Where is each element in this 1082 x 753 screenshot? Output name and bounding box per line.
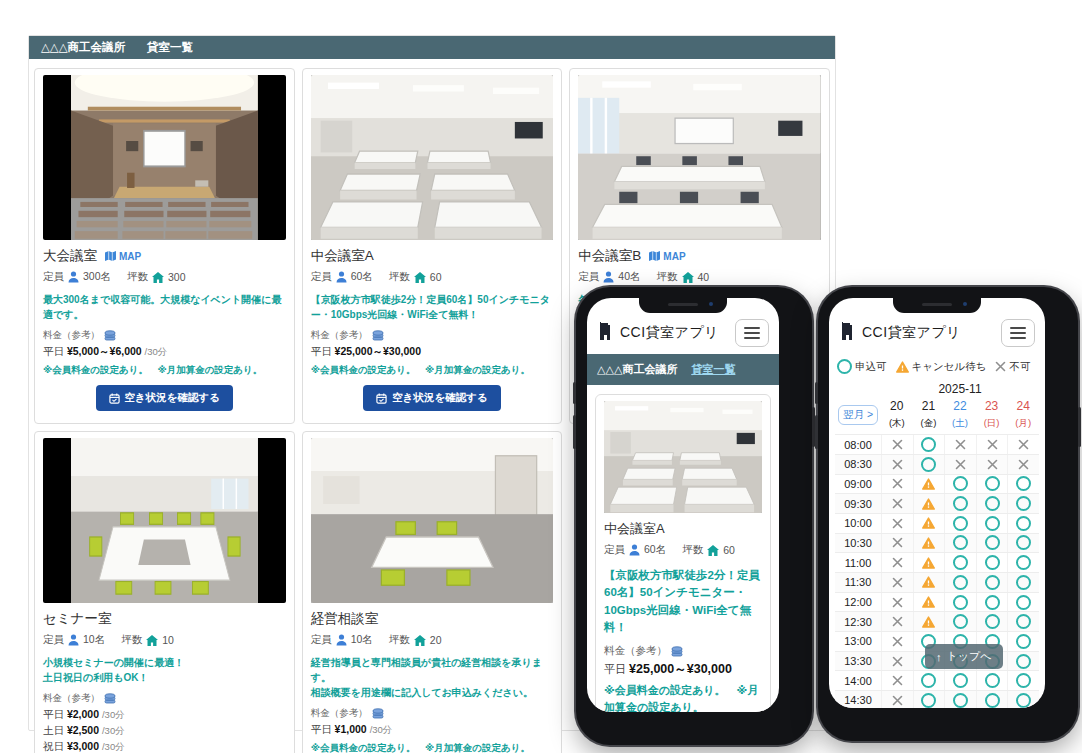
capacity-label: 定員	[604, 543, 625, 557]
check-availability-button[interactable]: 空き状況を確認する	[96, 385, 233, 411]
price-line: 平日 ¥5,000～¥6,000 /30分	[43, 345, 286, 359]
coins-icon	[372, 708, 384, 719]
member-price-note: ※会員料金の設定あり。 ※月加算金の設定あり。	[311, 741, 554, 753]
slot-cell[interactable]	[976, 475, 1008, 494]
room-title: 中会議室B	[578, 247, 641, 265]
slot-cell[interactable]	[913, 691, 945, 708]
navbar-brand: △△△商工会議所	[41, 40, 125, 55]
time-cell: 09:00	[835, 478, 881, 490]
member-price-note: ※会員料金の設定あり。 ※月加算金の設定あり。	[311, 363, 554, 377]
available-icon	[921, 437, 936, 452]
slot-cell[interactable]	[1007, 435, 1039, 454]
day-header: 22(土)	[944, 399, 976, 430]
available-icon	[1016, 476, 1031, 491]
waitlist-icon	[922, 576, 935, 588]
person-icon	[336, 634, 347, 646]
room-description: 【京阪枚方市駅徒歩2分！定員60名】50インチモニター・10Gbps光回線・Wi…	[604, 567, 762, 636]
area-value: 300	[168, 271, 186, 283]
available-icon	[953, 595, 968, 610]
calendar-row: 12:30	[835, 611, 1039, 631]
fee-label: 料金（参考）	[311, 329, 554, 342]
app-title: CCI貸室アプリ	[620, 324, 719, 342]
room-meta: 定員300名 坪数300	[43, 270, 286, 284]
slot-cell[interactable]	[976, 435, 1008, 454]
time-cell: 13:00	[835, 635, 881, 647]
hamburger-icon	[744, 327, 760, 339]
unavailable-icon	[987, 459, 998, 470]
area-label: 坪数	[682, 543, 703, 557]
area-label: 坪数	[389, 270, 410, 284]
room-title: セミナー室	[43, 610, 111, 628]
map-link[interactable]: MAP	[105, 251, 141, 262]
room-meta: 定員60名 坪数60	[311, 270, 554, 284]
slot-cell[interactable]	[944, 593, 976, 612]
slot-cell[interactable]	[944, 534, 976, 553]
slot-cell[interactable]	[881, 652, 913, 671]
slot-cell[interactable]	[944, 612, 976, 631]
available-icon	[1016, 634, 1031, 649]
time-cell: 11:30	[835, 576, 881, 588]
waitlist-icon	[922, 478, 935, 490]
unavailable-icon	[892, 557, 903, 568]
room-meta: 定員10名 坪数10	[43, 633, 286, 647]
capacity-label: 定員	[311, 633, 332, 647]
navbar-link-room-list[interactable]: 貸室一覧	[691, 362, 735, 377]
navbar-brand: △△△商工会議所	[597, 362, 677, 377]
phone-left: CCI貸室アプリ △△△商工会議所 貸室一覧 中会議室A 定員60名 坪数60 …	[576, 287, 812, 745]
unavailable-icon	[892, 518, 903, 529]
slot-cell[interactable]	[1007, 632, 1039, 651]
capacity-label: 定員	[43, 270, 64, 284]
phone-right: CCI貸室アプリ 申込可キャンセル待ち不可 2025-11 翌月 >20(木)2…	[818, 287, 1078, 741]
map-link-label: MAP	[663, 251, 685, 262]
slot-cell[interactable]	[944, 435, 976, 454]
time-cell: 08:00	[835, 439, 881, 451]
available-icon	[1016, 555, 1031, 570]
person-icon	[336, 271, 347, 283]
available-icon	[953, 496, 968, 511]
slot-cell[interactable]	[976, 671, 1008, 690]
slot-cell[interactable]	[913, 475, 945, 494]
slot-cell[interactable]	[1007, 573, 1039, 592]
legend-item: キャンセル待ち	[896, 360, 987, 374]
capacity-label: 定員	[311, 270, 332, 284]
house-icon	[146, 635, 158, 646]
fee-label: 料金（参考）	[311, 707, 554, 720]
unavailable-icon	[995, 361, 1006, 372]
available-icon	[1016, 535, 1031, 550]
waitlist-icon	[922, 498, 935, 510]
capacity-value: 40名	[618, 270, 640, 284]
room-photo	[43, 438, 286, 603]
price-line: 平日 ¥1,000 /30分	[311, 723, 554, 737]
slot-cell[interactable]	[976, 593, 1008, 612]
available-icon	[953, 516, 968, 531]
capacity-label: 定員	[43, 633, 64, 647]
price-line: 土日 ¥2,500 /30分	[43, 724, 286, 738]
price-line: 平日 ¥2,000 /30分	[43, 708, 286, 722]
slot-cell[interactable]	[913, 593, 945, 612]
time-cell: 11:00	[835, 557, 881, 569]
time-cell: 13:30	[835, 655, 881, 667]
calendar-row: 14:00	[835, 670, 1039, 690]
slot-cell[interactable]	[976, 494, 1008, 513]
available-icon	[1016, 673, 1031, 688]
available-icon	[985, 496, 1000, 511]
room-meta: 定員10名 坪数20	[311, 633, 554, 647]
slot-cell[interactable]	[976, 573, 1008, 592]
calendar-row: 09:00	[835, 474, 1039, 494]
map-link-label: MAP	[119, 251, 141, 262]
time-cell: 10:30	[835, 537, 881, 549]
available-icon	[985, 516, 1000, 531]
available-icon	[921, 693, 936, 708]
map-icon	[649, 251, 660, 261]
room-photo	[604, 401, 762, 513]
available-icon	[953, 575, 968, 590]
unavailable-icon	[1018, 459, 1029, 470]
room-card: 大会議室MAP 定員300名 坪数300 最大300名まで収容可能。大規模なイベ…	[34, 68, 295, 424]
slot-cell[interactable]	[944, 475, 976, 494]
building-icon	[839, 322, 856, 345]
slot-cell[interactable]	[1007, 455, 1039, 474]
menu-button[interactable]	[735, 319, 769, 347]
available-icon	[837, 359, 852, 374]
price-line: 平日 ¥25,000～¥30,000	[604, 661, 762, 678]
slot-cell[interactable]	[881, 475, 913, 494]
unavailable-icon	[955, 439, 966, 450]
slot-cell[interactable]	[976, 455, 1008, 474]
available-icon	[1016, 595, 1031, 610]
area-value: 60	[430, 271, 442, 283]
waitlist-icon	[922, 596, 935, 608]
phone-notch	[639, 298, 727, 313]
slot-cell[interactable]	[881, 514, 913, 533]
time-cell: 08:30	[835, 458, 881, 470]
person-icon	[68, 634, 79, 646]
day-header: 24(月)	[1007, 399, 1039, 430]
available-icon	[1016, 654, 1031, 669]
slot-cell[interactable]	[1007, 671, 1039, 690]
slot-cell[interactable]	[1007, 534, 1039, 553]
area-value: 60	[723, 544, 735, 556]
available-icon	[921, 457, 936, 472]
calendar-row: 11:30	[835, 572, 1039, 592]
legend-label: 不可	[1009, 360, 1030, 374]
slot-cell[interactable]	[881, 593, 913, 612]
area-value: 10	[162, 634, 174, 646]
coins-icon	[372, 330, 384, 341]
room-title: 中会議室A	[604, 520, 665, 538]
slot-cell[interactable]	[1007, 691, 1039, 708]
app-title: CCI貸室アプリ	[862, 324, 961, 342]
unavailable-icon	[892, 459, 903, 470]
legend-label: 申込可	[855, 360, 887, 374]
day-header: 20(木)	[881, 399, 913, 430]
slot-cell[interactable]	[881, 691, 913, 708]
available-icon	[953, 535, 968, 550]
slot-cell[interactable]	[913, 553, 945, 572]
room-description: 最大300名まで収容可能。大規模なイベント開催に最適です。	[43, 292, 286, 322]
unavailable-icon	[892, 478, 903, 489]
phone-right-screen: CCI貸室アプリ 申込可キャンセル待ち不可 2025-11 翌月 >20(木)2…	[829, 298, 1045, 708]
room-title: 経営相談室	[311, 610, 379, 628]
available-icon	[985, 614, 1000, 629]
room-card: セミナー室 定員10名 坪数10 小規模セミナーの開催に最適！ 土日祝日の利用も…	[34, 431, 295, 753]
area-value: 20	[430, 634, 442, 646]
slot-cell[interactable]	[976, 514, 1008, 533]
phone-left-screen: CCI貸室アプリ △△△商工会議所 貸室一覧 中会議室A 定員60名 坪数60 …	[587, 298, 779, 712]
time-cell: 09:30	[835, 498, 881, 510]
time-cell: 14:00	[835, 675, 881, 687]
available-icon	[985, 595, 1000, 610]
fee-label: 料金（参考）	[43, 692, 286, 705]
unavailable-icon	[892, 616, 903, 627]
waitlist-icon	[896, 361, 909, 373]
area-value: 40	[698, 271, 710, 283]
time-cell: 12:30	[835, 616, 881, 628]
navbar-link-room-list[interactable]: 貸室一覧	[147, 40, 193, 55]
calendar-row: 08:00	[835, 434, 1039, 454]
calendar-month: 2025-11	[881, 378, 1039, 398]
capacity-value: 300名	[83, 270, 111, 284]
slot-cell[interactable]	[1007, 494, 1039, 513]
slot-cell[interactable]	[944, 514, 976, 533]
available-icon	[1016, 496, 1031, 511]
unavailable-icon	[892, 656, 903, 667]
calendar-row: 12:00	[835, 592, 1039, 612]
room-description: 【京阪枚方市駅徒歩2分！定員60名】50インチモニター・10Gbps光回線・Wi…	[311, 292, 554, 322]
time-cell: 12:00	[835, 596, 881, 608]
area-label: 坪数	[127, 270, 148, 284]
map-icon	[105, 251, 116, 261]
room-description: 経営指導員と専門相談員が貴社の経営相談を承ります。 相談概要を用途欄に記入してお…	[311, 655, 554, 700]
available-icon	[985, 693, 1000, 708]
house-icon	[414, 272, 426, 283]
room-card: 中会議室A 定員60名 坪数60 【京阪枚方市駅徒歩2分！定員60名】50インチ…	[595, 394, 771, 712]
capacity-value: 60名	[644, 543, 666, 557]
check-availability-button[interactable]: 空き状況を確認する	[363, 385, 500, 411]
slot-cell[interactable]	[1007, 593, 1039, 612]
calendar-day-headers: 翌月 >20(木)21(金)22(土)23(日)24(月)	[835, 398, 1039, 434]
available-icon	[985, 575, 1000, 590]
slot-cell[interactable]	[976, 553, 1008, 572]
room-photo	[43, 75, 286, 240]
site-navbar: △△△商工会議所 貸室一覧	[29, 36, 835, 59]
available-icon	[1016, 693, 1031, 708]
area-label: 坪数	[389, 633, 410, 647]
slot-cell[interactable]	[881, 435, 913, 454]
calendar-row: 09:30	[835, 493, 1039, 513]
capacity-value: 10名	[351, 633, 373, 647]
unavailable-icon	[892, 439, 903, 450]
time-cell: 10:00	[835, 517, 881, 529]
calendar-row: 08:30	[835, 454, 1039, 474]
coins-icon	[104, 693, 116, 704]
available-icon	[1016, 614, 1031, 629]
available-icon	[1016, 575, 1031, 590]
available-icon	[985, 555, 1000, 570]
calendar-icon	[109, 393, 120, 404]
available-icon	[953, 673, 968, 688]
room-photo	[311, 438, 554, 603]
slot-cell[interactable]	[913, 534, 945, 553]
unavailable-icon	[892, 695, 903, 706]
price-line: 平日 ¥25,000～¥30,000	[311, 345, 554, 359]
slot-cell[interactable]	[976, 612, 1008, 631]
slot-cell[interactable]	[1007, 475, 1039, 494]
room-title: 大会議室	[43, 247, 97, 265]
slot-cell[interactable]	[913, 514, 945, 533]
area-label: 坪数	[121, 633, 142, 647]
calendar-row: 10:30	[835, 533, 1039, 553]
member-price-note: ※会員料金の設定あり。 ※月加算金の設定あり。	[43, 363, 286, 377]
unavailable-icon	[892, 498, 903, 509]
building-icon	[597, 322, 614, 345]
capacity-value: 10名	[83, 633, 105, 647]
available-icon	[953, 476, 968, 491]
capacity-label: 定員	[578, 270, 599, 284]
unavailable-icon	[892, 597, 903, 608]
fee-label: 料金（参考）	[43, 329, 286, 342]
slot-cell[interactable]	[976, 691, 1008, 708]
slot-cell[interactable]	[1007, 514, 1039, 533]
person-icon	[68, 271, 79, 283]
next-month-button[interactable]: 翌月 >	[838, 405, 878, 425]
room-description: 小規模セミナーの開催に最適！ 土日祝日の利用もOK！	[43, 655, 286, 685]
slot-cell[interactable]	[976, 534, 1008, 553]
slot-cell[interactable]	[913, 671, 945, 690]
slot-cell[interactable]	[881, 671, 913, 690]
waitlist-icon	[922, 537, 935, 549]
room-title: 中会議室A	[311, 247, 374, 265]
slot-cell[interactable]	[1007, 553, 1039, 572]
available-icon	[921, 673, 936, 688]
slot-cell[interactable]	[881, 632, 913, 651]
house-icon	[682, 272, 694, 283]
unavailable-icon	[955, 459, 966, 470]
slot-cell[interactable]	[944, 553, 976, 572]
slot-cell[interactable]	[881, 553, 913, 572]
slot-cell[interactable]	[913, 435, 945, 454]
room-photo	[311, 75, 554, 240]
waitlist-icon	[922, 517, 935, 529]
slot-cell[interactable]	[944, 691, 976, 708]
unavailable-icon	[892, 577, 903, 588]
room-photo	[578, 75, 821, 240]
unavailable-icon	[987, 439, 998, 450]
available-icon	[953, 555, 968, 570]
unavailable-icon	[1018, 439, 1029, 450]
phone-notch	[893, 298, 981, 313]
slot-cell[interactable]	[881, 612, 913, 631]
slot-cell[interactable]	[913, 455, 945, 474]
house-icon	[152, 272, 164, 283]
up-arrow-icon: ↑	[936, 651, 942, 663]
coins-icon	[671, 646, 683, 657]
slot-cell[interactable]	[944, 455, 976, 474]
slot-cell[interactable]	[1007, 652, 1039, 671]
app-navbar: △△△商工会議所 貸室一覧	[587, 354, 779, 385]
slot-cell[interactable]	[1007, 612, 1039, 631]
available-icon	[985, 673, 1000, 688]
menu-button[interactable]	[1001, 319, 1035, 347]
slot-cell[interactable]	[881, 573, 913, 592]
calendar-icon	[376, 393, 387, 404]
slot-cell[interactable]	[944, 494, 976, 513]
day-header: 21(金)	[913, 399, 945, 430]
legend-item: 不可	[995, 360, 1030, 374]
available-icon	[953, 693, 968, 708]
house-icon	[414, 635, 426, 646]
room-meta: 定員40名 坪数40	[578, 270, 821, 284]
member-price-note: ※会員料金の設定あり。 ※月加算金の設定あり。	[604, 682, 762, 712]
available-icon	[985, 476, 1000, 491]
slot-cell[interactable]	[944, 573, 976, 592]
coins-icon	[104, 330, 116, 341]
calendar-row: 14:30	[835, 690, 1039, 708]
unavailable-icon	[892, 675, 903, 686]
capacity-value: 60名	[351, 270, 373, 284]
slot-cell[interactable]	[944, 671, 976, 690]
waitlist-icon	[922, 616, 935, 628]
slot-cell[interactable]	[881, 494, 913, 513]
day-header: 23(日)	[976, 399, 1008, 430]
area-label: 坪数	[657, 270, 678, 284]
legend-item: 申込可	[837, 359, 887, 374]
waitlist-icon	[922, 557, 935, 569]
slot-cell[interactable]	[913, 573, 945, 592]
time-cell: 14:30	[835, 694, 881, 706]
fee-label: 料金（参考）	[604, 644, 762, 658]
room-card: 経営相談室 定員10名 坪数20 経営指導員と専門相談員が貴社の経営相談を承りま…	[302, 431, 563, 753]
slot-cell[interactable]	[913, 494, 945, 513]
unavailable-icon	[892, 537, 903, 548]
legend-label: キャンセル待ち	[912, 360, 987, 374]
room-meta: 定員60名 坪数60	[604, 543, 762, 557]
calendar-row: 10:00	[835, 513, 1039, 533]
house-icon	[707, 545, 719, 556]
available-icon	[985, 535, 1000, 550]
unavailable-icon	[892, 636, 903, 647]
slot-cell[interactable]	[913, 612, 945, 631]
person-icon	[629, 544, 640, 556]
price-line: 祝日 ¥3,000 /30分	[43, 740, 286, 753]
room-card: 中会議室A 定員60名 坪数60 【京阪枚方市駅徒歩2分！定員60名】50インチ…	[302, 68, 563, 424]
back-to-top-button[interactable]: ↑ トップへ	[925, 644, 1003, 669]
map-link[interactable]: MAP	[649, 251, 685, 262]
slot-cell[interactable]	[881, 534, 913, 553]
slot-cell[interactable]	[881, 455, 913, 474]
person-icon	[603, 271, 614, 283]
status-legend: 申込可キャンセル待ち不可	[829, 354, 1045, 378]
available-icon	[1016, 516, 1031, 531]
available-icon	[953, 614, 968, 629]
calendar-row: 11:00	[835, 552, 1039, 572]
hamburger-icon	[1010, 327, 1026, 339]
